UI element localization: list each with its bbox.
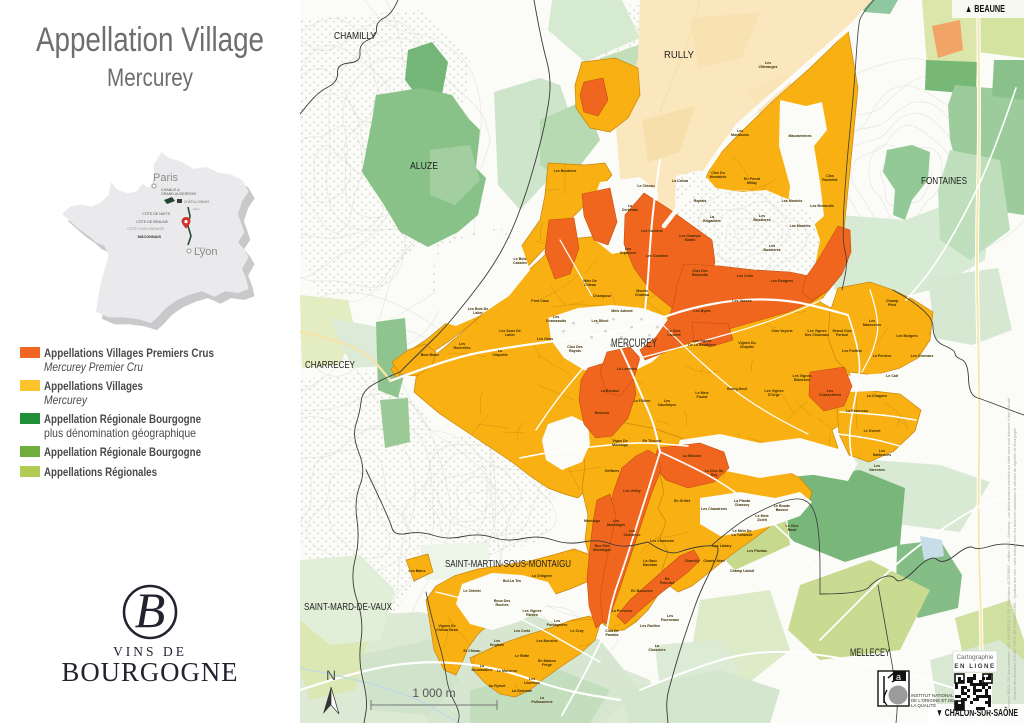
svg-text:Appellations Villages: Appellations Villages — [44, 379, 143, 393]
svg-text:Pontagniers: Pontagniers — [547, 623, 568, 627]
svg-text:Appellation Régionale Bourgogn: Appellation Régionale Bourgogne — [44, 445, 201, 459]
svg-text:Barraults: Barraults — [692, 273, 708, 277]
svg-text:Les Chaudrons: Les Chaudrons — [701, 507, 727, 511]
svg-text:Fourneaux: Fourneaux — [661, 618, 679, 622]
svg-text:Les Lanary: Les Lanary — [713, 544, 732, 548]
svg-text:EN LIGNE: EN LIGNE — [954, 663, 995, 670]
svg-text:De La Bouthiere: De La Bouthiere — [688, 343, 716, 347]
svg-text:La Creiza: La Creiza — [672, 179, 689, 183]
svg-text:Mauvarennes: Mauvarennes — [789, 134, 812, 138]
svg-text:Rochette: Rochette — [822, 178, 837, 182]
svg-text:Les Byots: Les Byots — [693, 309, 710, 313]
svg-text:Les Obus: Les Obus — [537, 337, 553, 341]
svg-text:En Theurot: En Theurot — [643, 439, 663, 443]
svg-text:Bussieres: Bussieres — [753, 218, 770, 222]
svg-text:Bourg-Neuf: Bourg-Neuf — [727, 387, 748, 391]
svg-text:LA QUALITÉ: LA QUALITÉ — [911, 703, 936, 708]
svg-text:Mercurey: Mercurey — [107, 64, 193, 92]
svg-text:Chateau: Chateau — [635, 293, 649, 297]
svg-text:CHAMILLY: CHAMILLY — [334, 30, 376, 42]
svg-text:MELLECEY: MELLECEY — [850, 647, 890, 659]
svg-text:CHARRECEY: CHARRECEY — [305, 359, 355, 371]
svg-text:Roy: Roy — [711, 473, 718, 477]
svg-text:Mâcon: Mâcon — [197, 246, 206, 250]
svg-text:Les Dilect: Les Dilect — [592, 319, 610, 323]
svg-text:D'Orge: D'Orge — [768, 393, 780, 397]
svg-text:Le Chtelet: Le Chtelet — [463, 589, 481, 593]
svg-text:Les Monteis: Les Monteis — [782, 199, 803, 203]
svg-text:CÔTE DE BEAUNE: CÔTE DE BEAUNE — [136, 219, 168, 224]
svg-text:Pitot: Pitot — [888, 303, 897, 307]
svg-text:Les Combins: Les Combins — [646, 254, 669, 258]
svg-text:Chassey: Chassey — [735, 503, 750, 507]
svg-text:CÔTE CHALONNAISE: CÔTE CHALONNAISE — [127, 226, 164, 231]
svg-text:La Chagnee: La Chagnee — [867, 394, 887, 398]
svg-text:Champ Ladoit: Champ Ladoit — [730, 569, 755, 573]
svg-text:La Perriere: La Perriere — [873, 354, 892, 358]
svg-text:La Gretrade: La Gretrade — [512, 689, 532, 693]
svg-text:Montaigus: Montaigus — [607, 523, 625, 527]
svg-text:Au Rymot: Au Rymot — [489, 684, 507, 688]
svg-text:Meix Adenot: Meix Adenot — [611, 309, 633, 313]
svg-text:Libertees: Libertees — [524, 681, 540, 685]
svg-text:B: B — [135, 582, 166, 638]
svg-text:Chassiere: Chassiere — [648, 648, 665, 652]
svg-text:ALUZE: ALUZE — [410, 160, 438, 172]
svg-text:La Perruche: La Perruche — [612, 609, 633, 613]
svg-text:Varennes: Varennes — [869, 468, 885, 472]
svg-text:Les Crets: Les Crets — [514, 629, 530, 633]
svg-text:Le Cait: Le Cait — [886, 374, 899, 378]
svg-text:SAINT-MARTIN-SOUS-MONTAIGU: SAINT-MARTIN-SOUS-MONTAIGU — [445, 559, 571, 570]
svg-text:N: N — [326, 667, 336, 683]
svg-text:Er Chteau: Er Chteau — [464, 649, 481, 653]
svg-text:CÔTE DE NUITS: CÔTE DE NUITS — [142, 211, 170, 216]
svg-text:Rayots: Rayots — [569, 349, 581, 353]
svg-text:Zoleit: Zoleit — [757, 518, 767, 522]
svg-text:Les Velley: Les Velley — [623, 489, 640, 493]
svg-text:Dijon: Dijon — [193, 207, 200, 211]
svg-text:La Filliere: La Filliere — [634, 399, 651, 403]
svg-text:Rochelles: Rochelles — [454, 346, 471, 350]
svg-text:Chameaults: Chameaults — [546, 319, 566, 323]
svg-text:Brigadiere: Brigadiere — [703, 219, 721, 223]
svg-text:Les Bousins: Les Bousins — [536, 639, 557, 643]
svg-text:Les Plantas: Les Plantas — [747, 549, 767, 553]
svg-text:Polissonerie: Polissonerie — [531, 700, 552, 704]
svg-text:Paradis: Paradis — [606, 633, 619, 637]
svg-text:Appellation Régionale Bourgogn: Appellation Régionale Bourgogne — [44, 412, 201, 426]
svg-text:Rtelles: Rtelles — [526, 613, 538, 617]
svg-text:Le Rafte: Le Rafte — [515, 654, 529, 658]
svg-text:La Tumande: La Tumande — [732, 533, 753, 537]
svg-text:Paris: Paris — [153, 172, 179, 184]
svg-text:Fortoul: Fortoul — [836, 333, 848, 337]
svg-text:Bois Blanc: Bois Blanc — [421, 353, 440, 357]
svg-text:Les Vasees: Les Vasees — [732, 299, 751, 303]
svg-text:Montaigu: Montaigu — [612, 443, 628, 447]
svg-text:Les Monteis: Les Monteis — [790, 224, 811, 228]
svg-text:Cerbeade: Cerbeade — [622, 208, 638, 212]
svg-text:Geffares: Geffares — [605, 469, 620, 473]
svg-text:Millay: Millay — [747, 181, 757, 185]
svg-text:Chteau Beau: Chteau Beau — [436, 628, 458, 632]
svg-text:Clos Voyens: Clos Voyens — [771, 329, 792, 333]
svg-text:Cartographie: Cartographie — [957, 654, 994, 661]
svg-text:Roches: Roches — [496, 603, 509, 607]
svg-text:Foulot: Foulot — [697, 395, 709, 399]
svg-text:Les Crets: Les Crets — [737, 274, 753, 278]
svg-text:La Fourneau: La Fourneau — [846, 409, 868, 413]
svg-text:En Grillet: En Grillet — [674, 499, 691, 503]
svg-text:Appellations Villages Premiers: Appellations Villages Premiers Crus — [44, 346, 214, 360]
svg-text:Martin: Martin — [685, 238, 696, 242]
svg-text:CHÂTILLONNAIS: CHÂTILLONNAIS — [184, 200, 209, 204]
svg-text:En Bousnine: En Bousnine — [631, 589, 653, 593]
svg-text:La Bondue: La Bondue — [601, 389, 620, 393]
svg-text:Marcoeurs: Marcoeurs — [863, 323, 881, 327]
svg-text:Peloutet: Peloutet — [660, 581, 675, 585]
svg-text:1 000 m: 1 000 m — [412, 686, 455, 700]
svg-text:Les Bouteres: Les Bouteres — [554, 169, 577, 173]
svg-text:RULLY: RULLY — [664, 49, 694, 61]
svg-text:Bul-La Tes: Bul-La Tes — [503, 579, 521, 583]
svg-text:Le Gorvet: Le Gorvet — [864, 429, 882, 433]
svg-text:Cliquette: Cliquette — [492, 353, 507, 357]
svg-text:Les Berlandis: Les Berlandis — [810, 204, 834, 208]
svg-text:plus dénomination géographique: plus dénomination géographique — [44, 426, 196, 440]
svg-text:Champsse: Champsse — [593, 294, 611, 298]
svg-text:Les Puillets: Les Puillets — [842, 349, 862, 353]
svg-text:Blanches: Blanches — [794, 378, 810, 382]
svg-text:MÂCONNAIS: MÂCONNAIS — [138, 234, 162, 239]
svg-text:La Chtignee: La Chtignee — [532, 574, 553, 578]
svg-text:Caudroyes: Caudroyes — [658, 403, 677, 407]
svg-text:Le Moneron: Le Moneron — [497, 669, 517, 673]
svg-text:Machtau: Machtau — [643, 563, 658, 567]
svg-text:SAINT-MARD-DE-VAUX: SAINT-MARD-DE-VAUX — [304, 602, 392, 613]
svg-text:Latier: Latier — [505, 333, 515, 337]
svg-text:La Laveriee: La Laveriee — [617, 367, 637, 371]
svg-text:Champ Nran: Champ Nran — [703, 559, 724, 563]
svg-text:a: a — [896, 672, 901, 682]
svg-text:Les Chanoran: Les Chanoran — [650, 539, 674, 543]
svg-text:Des Chazeaux: Des Chazeaux — [805, 333, 829, 337]
svg-text:Chamilly: Chamilly — [685, 559, 700, 563]
svg-text:Bussieres: Bussieres — [763, 248, 780, 252]
svg-text:Sources: BDGI, SIG des membres: Sources: BDGI, SIG des membres - IGN, BD… — [1007, 397, 1011, 710]
svg-text:Raed: Raed — [788, 528, 797, 532]
svg-text:Les Ruelles: Les Ruelles — [640, 624, 660, 628]
svg-text:Villeranges: Villeranges — [758, 65, 777, 69]
svg-text:BOURGOGNE: BOURGOGNE — [62, 657, 239, 687]
svg-text:GRAND AUXERROIS: GRAND AUXERROIS — [161, 192, 197, 196]
svg-text:Orpanses: Orpanses — [620, 251, 637, 255]
svg-text:Chavance: Chavance — [624, 533, 641, 537]
svg-text:Ferge: Ferge — [542, 663, 552, 667]
svg-text:Laurent: Laurent — [667, 333, 681, 337]
svg-text:Bassee: Bassee — [776, 508, 789, 512]
svg-text:Appellation Village: Appellation Village — [36, 21, 264, 59]
svg-text:Lalier: Lalier — [473, 311, 483, 315]
svg-text:Mercurey: Mercurey — [44, 393, 88, 407]
svg-text:Montaiets: Montaiets — [710, 175, 727, 179]
svg-text:Chapitre: Chapitre — [740, 345, 755, 349]
svg-text:Mourasaline: Mourasaline — [472, 668, 493, 672]
svg-text:Moraisons: Moraisons — [731, 133, 749, 137]
svg-text:Les Murgers: Les Murgers — [896, 334, 917, 338]
svg-text:Les Ormeaux: Les Ormeaux — [911, 354, 934, 358]
svg-text:Cassien: Cassien — [513, 261, 527, 265]
svg-text:La Mission: La Mission — [683, 454, 702, 458]
svg-text:Les Rougess: Les Rougess — [771, 279, 793, 283]
svg-text:Mercurey Premier Cru: Mercurey Premier Cru — [44, 360, 143, 374]
svg-text:MERCUREY: MERCUREY — [611, 338, 657, 350]
svg-text:Chasselleres: Chasselleres — [819, 393, 841, 397]
svg-text:Les Cardens: Les Cardens — [641, 229, 663, 233]
svg-text:Le Chteau: Le Chteau — [637, 184, 654, 188]
svg-text:Chteau: Chteau — [584, 283, 596, 287]
svg-text:Pred Caza: Pred Caza — [531, 299, 549, 303]
svg-text:Englads: Englads — [490, 643, 504, 647]
svg-text:Montaigu: Montaigu — [584, 519, 600, 523]
svg-text:Le Cray: Le Cray — [570, 629, 583, 633]
svg-text:Nathences: Nathences — [873, 453, 891, 457]
svg-text:Montaigus: Montaigus — [593, 548, 611, 552]
svg-text:Bassera: Bassera — [595, 411, 610, 415]
svg-text:Appellations Régionales: Appellations Régionales — [44, 465, 157, 479]
svg-text:Les Bains: Les Bains — [409, 569, 426, 573]
svg-text:▲ BEAUNE: ▲ BEAUNE — [965, 4, 1005, 15]
svg-text:Replais: Replais — [694, 199, 707, 203]
svg-text:FONTAINES: FONTAINES — [921, 175, 967, 187]
svg-text:Sources des donnees: IGN BD TO: Sources des donnees: IGN BD TOPO, BD PAR… — [1013, 428, 1017, 700]
